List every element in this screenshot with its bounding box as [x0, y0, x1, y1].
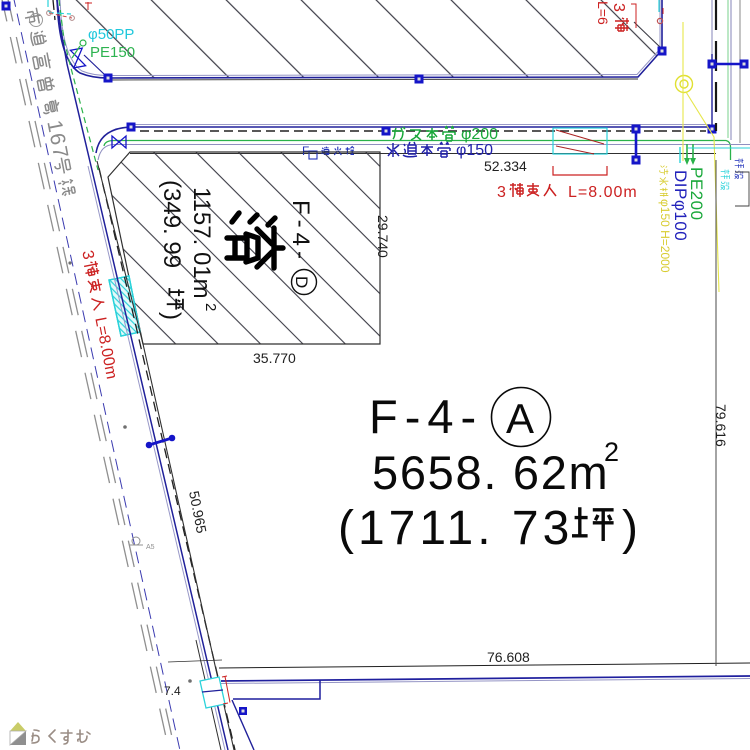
svg-text:1157. 01m: 1157. 01m: [188, 187, 215, 299]
svg-text:φ50PP: φ50PP: [88, 26, 134, 43]
svg-text:A: A: [506, 395, 534, 442]
svg-text:2: 2: [202, 303, 219, 311]
svg-text:52.334: 52.334: [484, 158, 527, 174]
svg-text:5658. 62m: 5658. 62m: [372, 446, 609, 499]
svg-text:3: 3: [610, 3, 627, 12]
svg-text:): ): [158, 312, 185, 320]
svg-text:φ200: φ200: [461, 126, 498, 143]
svg-text:3: 3: [497, 184, 506, 201]
svg-text:35.770: 35.770: [253, 350, 296, 366]
svg-text:(349. 99: (349. 99: [158, 180, 185, 268]
svg-text:A5: A5: [146, 544, 155, 551]
svg-text:PE150: PE150: [90, 44, 135, 61]
svg-text:79.616: 79.616: [713, 404, 729, 447]
svg-text:F-4-: F-4-: [369, 390, 483, 443]
svg-text:2: 2: [604, 437, 619, 467]
svg-text:): ): [622, 502, 638, 555]
svg-text:L=8.00m: L=8.00m: [568, 184, 638, 201]
svg-text:PE200: PE200: [687, 167, 706, 221]
svg-text:29.740: 29.740: [375, 215, 391, 258]
svg-text:F-4-: F-4-: [287, 200, 314, 264]
svg-text:φ150: φ150: [456, 142, 493, 159]
svg-text:L=6: L=6: [595, 1, 611, 25]
svg-text:φ150 H=2000: φ150 H=2000: [658, 199, 672, 273]
svg-text:7.4: 7.4: [164, 684, 181, 698]
svg-text:D: D: [292, 276, 311, 288]
svg-text:76.608: 76.608: [487, 649, 530, 665]
svg-text:(1711. 73: (1711. 73: [338, 502, 573, 555]
